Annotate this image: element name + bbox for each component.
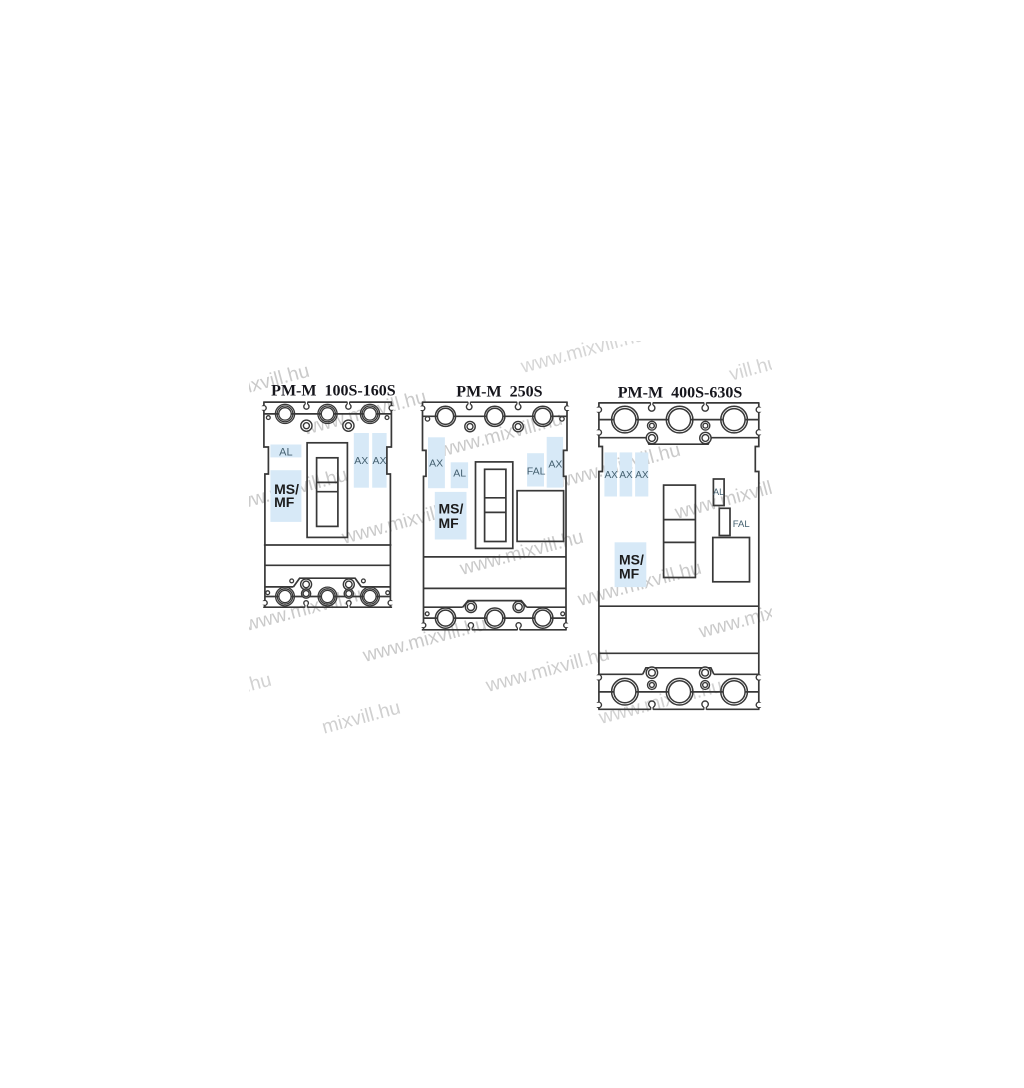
svg-text:FAL: FAL (733, 519, 750, 530)
svg-text:AX: AX (605, 470, 619, 481)
svg-text:PM-M 250S: PM-M 250S (456, 383, 542, 400)
svg-text:AX: AX (354, 455, 368, 467)
svg-text:AL: AL (713, 487, 724, 497)
svg-text:AL: AL (453, 468, 466, 480)
svg-text:FAL: FAL (527, 465, 546, 477)
svg-text:AX: AX (635, 470, 649, 481)
svg-text:AL: AL (279, 446, 292, 458)
svg-text:MF: MF (619, 565, 640, 581)
svg-text:AX: AX (372, 455, 386, 467)
svg-text:AX: AX (619, 470, 633, 481)
svg-text:MF: MF (274, 494, 295, 510)
svg-text:AX: AX (548, 459, 562, 471)
svg-text:AX: AX (429, 458, 443, 470)
svg-text:MF: MF (439, 515, 460, 531)
svg-text:PM-M 400S-630S: PM-M 400S-630S (618, 385, 743, 402)
svg-text:PM-M 100S-160S: PM-M 100S-160S (271, 383, 396, 400)
